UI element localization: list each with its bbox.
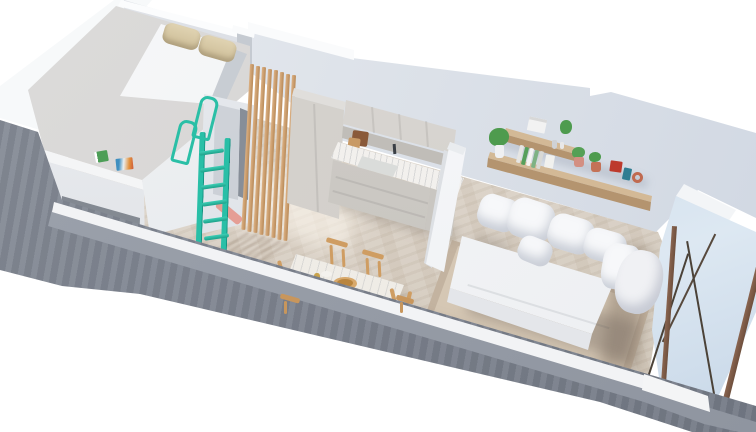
chair-post: [400, 302, 403, 313]
plant: [489, 128, 509, 146]
vase: [552, 140, 557, 149]
pink-pot: [574, 157, 584, 167]
vase: [560, 142, 564, 149]
apartment-render: [0, 0, 756, 432]
green-book: [94, 150, 109, 163]
plate: [321, 271, 332, 277]
terracotta-pot: [591, 162, 601, 172]
plant: [589, 152, 601, 162]
chair-post: [284, 301, 287, 314]
plant: [560, 120, 572, 134]
ring-decor: [632, 172, 643, 183]
red-box: [609, 160, 622, 173]
magazine: [115, 157, 133, 171]
white-pot: [495, 145, 504, 158]
